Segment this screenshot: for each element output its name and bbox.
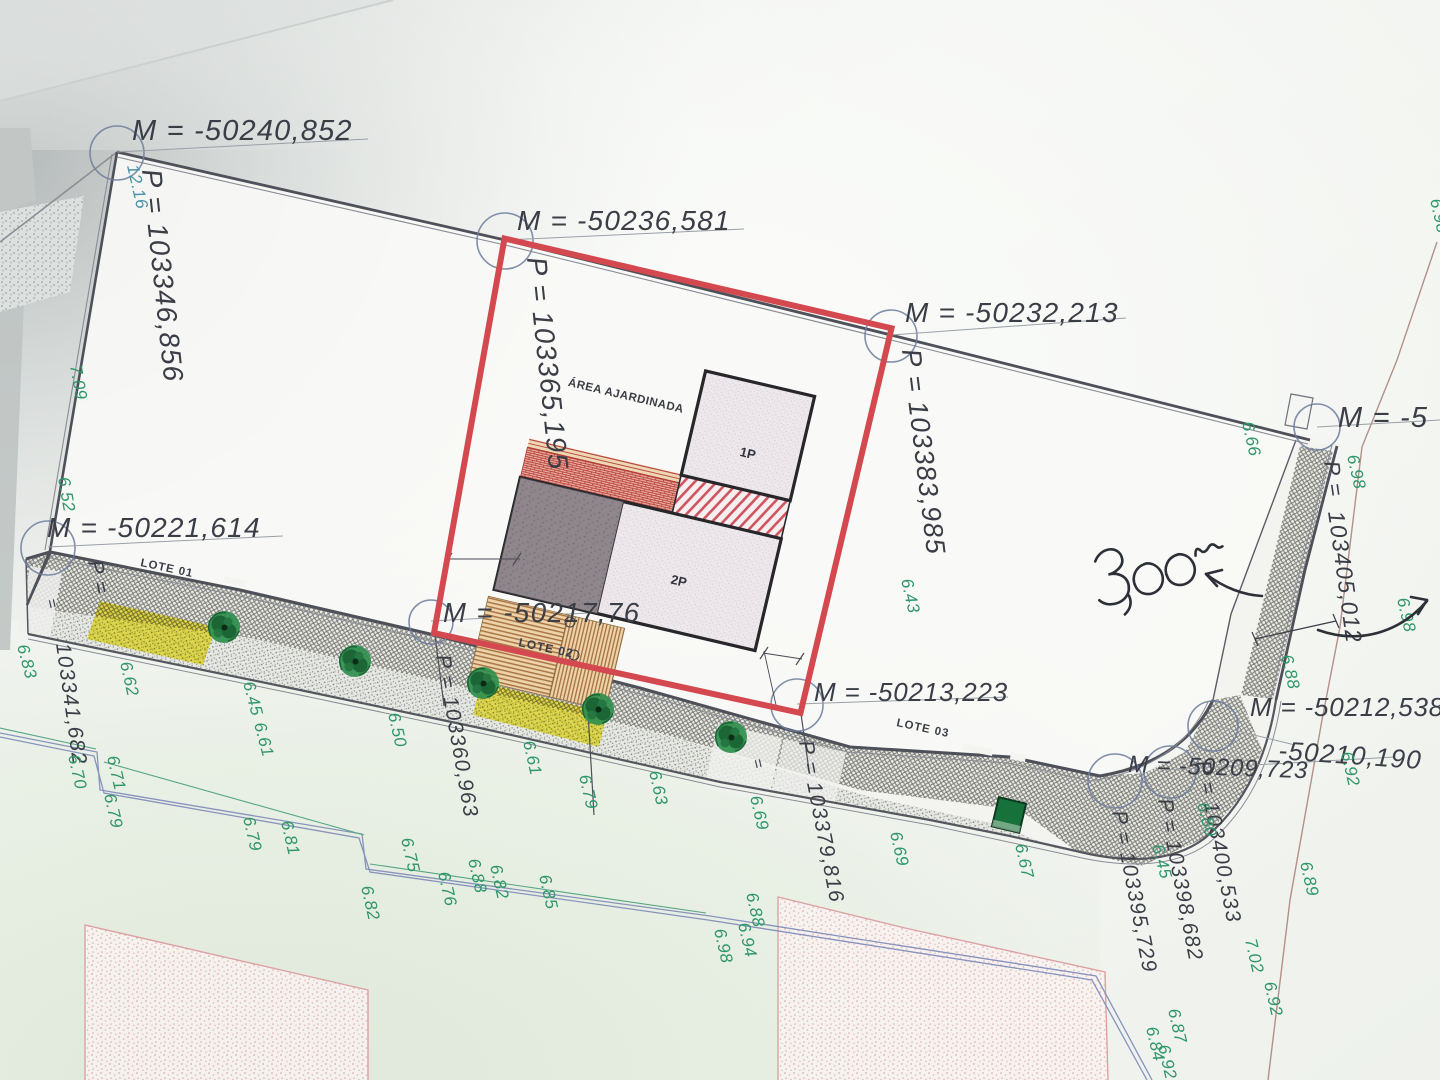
svg-text:M = -50232,213: M = -50232,213: [905, 297, 1119, 328]
svg-text:M = -50236,581: M = -50236,581: [517, 205, 731, 236]
svg-text:M = -50217,76: M = -50217,76: [443, 597, 641, 628]
svg-text:M = -50213,223: M = -50213,223: [814, 677, 1008, 707]
svg-text:P =: P =: [1319, 459, 1349, 499]
svg-text:M = -50240,852: M = -50240,852: [132, 115, 353, 147]
svg-text:M = -50212,538: M = -50212,538: [1250, 692, 1440, 722]
svg-text:M = -50221,614: M = -50221,614: [47, 512, 261, 543]
svg-text:M = -5: M = -5: [1338, 402, 1428, 434]
